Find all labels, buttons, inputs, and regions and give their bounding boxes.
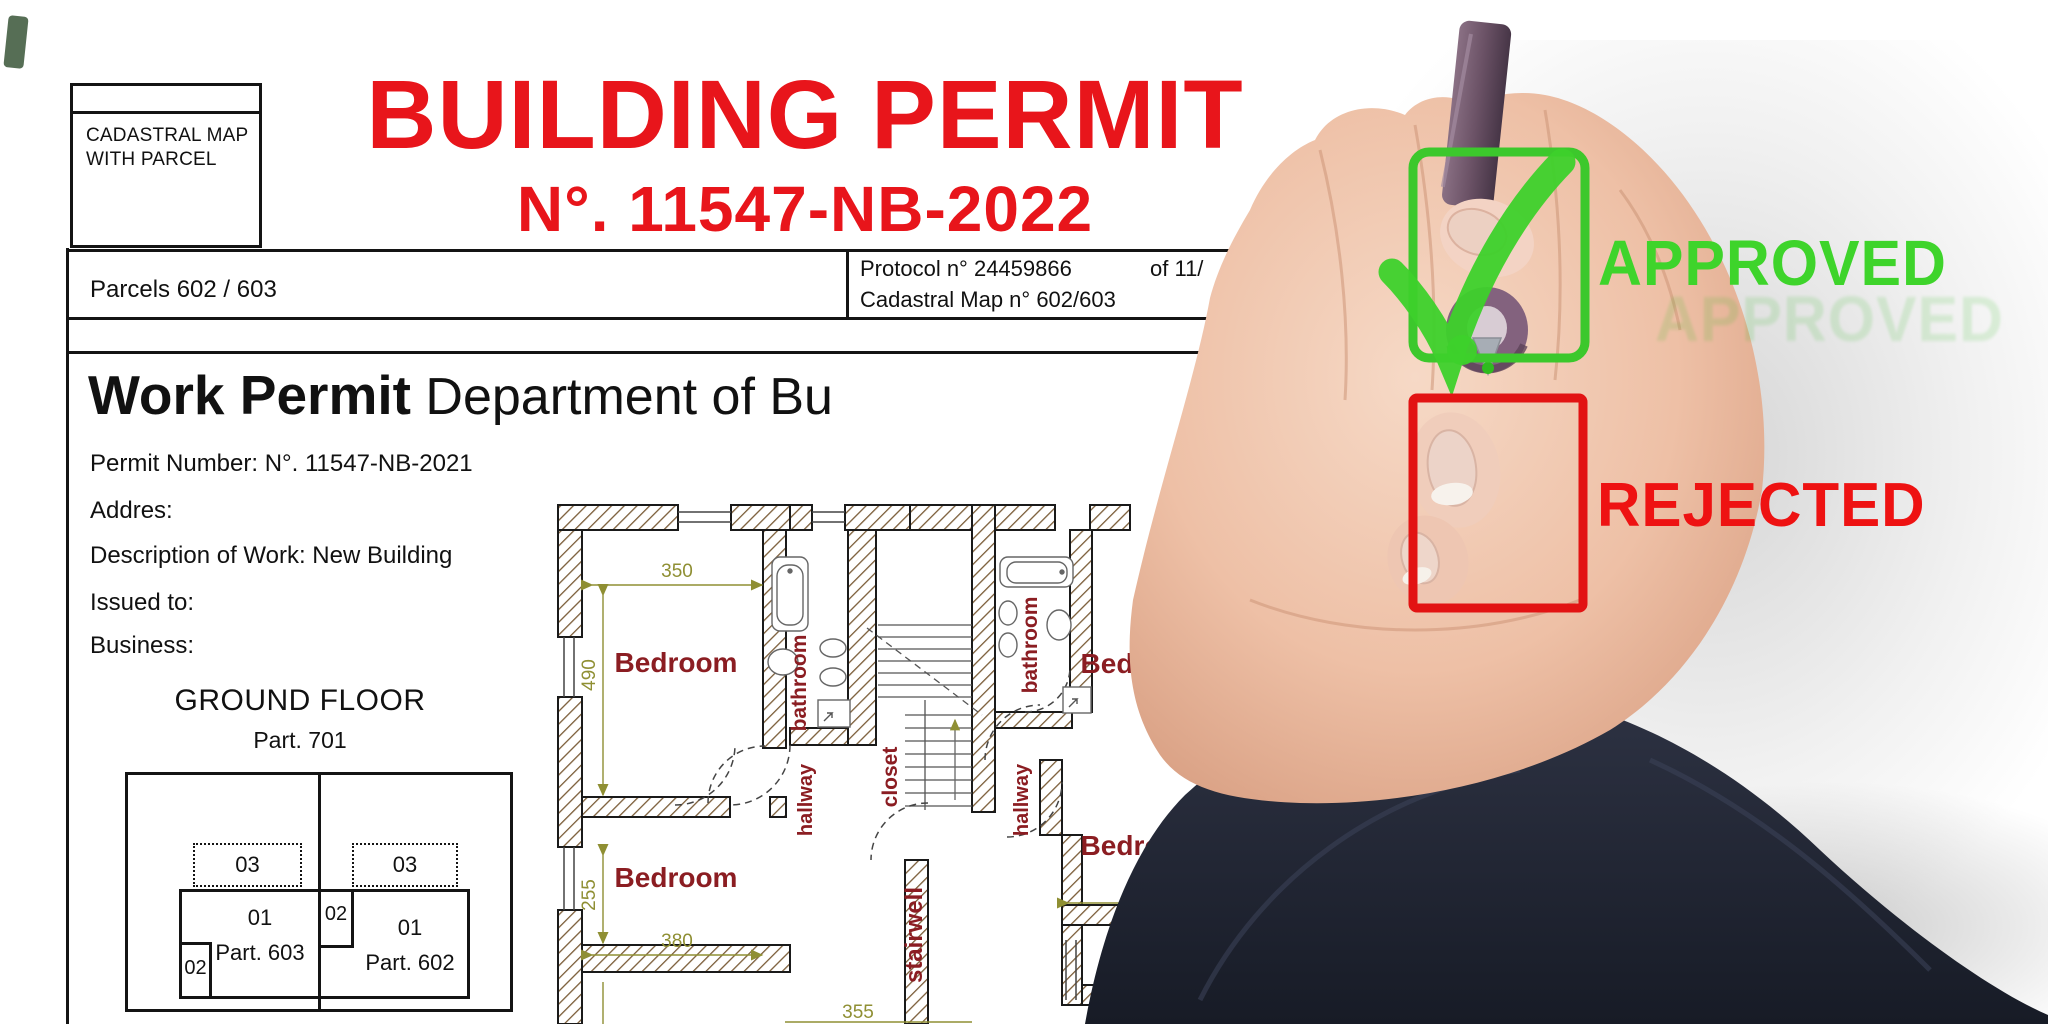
building-permit-scene: CADASTRAL MAP WITH PARCEL BUILDING PERMI… [0,0,2048,1024]
rejected-checkbox[interactable] [1413,398,1583,608]
approved-ghost-label: APPROVED [1655,282,2004,356]
rejected-label: REJECTED [1597,470,1926,541]
